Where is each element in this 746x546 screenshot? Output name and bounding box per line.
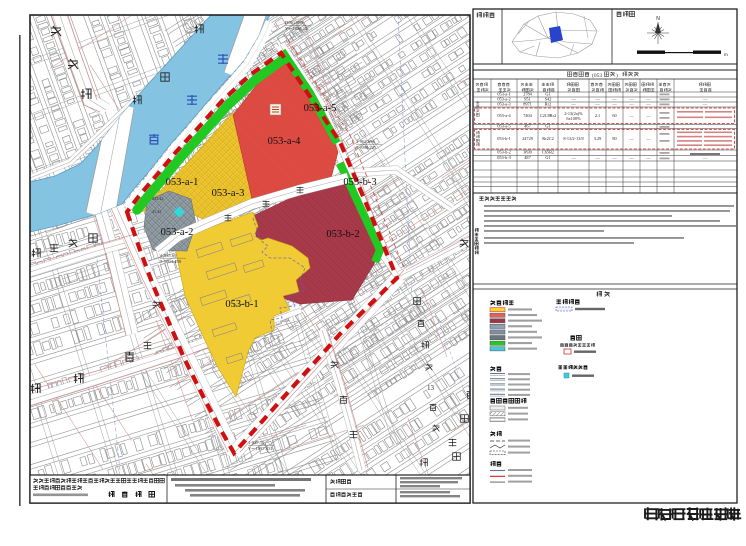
svg-text:3.29: 3.29	[594, 136, 602, 141]
svg-text:1-935.69: 1-935.69	[160, 253, 177, 258]
svg-text:G1: G1	[545, 155, 550, 160]
svg-text:053-a-3: 053-a-3	[212, 188, 245, 199]
svg-text:—: —	[594, 102, 600, 107]
svg-text:1-937.15: 1-937.15	[248, 440, 265, 445]
svg-text:8971: 8971	[523, 102, 532, 107]
svg-text:24729: 24729	[522, 136, 533, 141]
svg-text:487: 487	[524, 155, 531, 160]
svg-text:—: —	[594, 155, 600, 160]
svg-text:243.42: 243.42	[152, 196, 164, 201]
svg-text:—: —	[645, 102, 651, 107]
svg-text:—: —	[628, 102, 634, 107]
svg-text:—: —	[702, 156, 708, 161]
svg-text:8-13/2-13/8: 8-13/2-13/8	[563, 136, 583, 141]
svg-text:—: —	[645, 136, 651, 141]
svg-text:7404: 7404	[523, 113, 532, 118]
svg-text:—: —	[628, 136, 634, 141]
svg-text:053-a-4: 053-a-4	[497, 113, 511, 118]
svg-text:053-a-1: 053-a-1	[166, 177, 199, 188]
svg-text:1-962.696: 1-962.696	[356, 139, 375, 144]
svg-text:C2C8Rr2: C2C8Rr2	[540, 113, 556, 118]
svg-text:053-a-2: 053-a-2	[161, 227, 194, 238]
svg-text:053-b-2: 053-b-2	[497, 150, 511, 155]
svg-text:6x100%: 6x100%	[566, 116, 581, 121]
svg-text:—: —	[645, 113, 651, 118]
svg-text:053-b-1: 053-b-1	[225, 299, 258, 310]
svg-text:053-b-2: 053-b-2	[326, 229, 359, 240]
svg-text:053-b-3: 053-b-3	[343, 177, 376, 188]
svg-text:C65R2: C65R2	[542, 150, 554, 155]
svg-text:053-a-3: 053-a-3	[497, 102, 510, 107]
svg-text:053-a-4: 053-a-4	[268, 136, 301, 147]
svg-text:467: 467	[524, 124, 531, 129]
svg-text:—: —	[611, 102, 617, 107]
svg-text:5--998.225: 5--998.225	[356, 145, 377, 150]
svg-text:—: —	[645, 155, 651, 160]
svg-text:D561.890: D561.890	[285, 20, 304, 25]
svg-text:—: —	[570, 102, 576, 107]
svg-text:): )	[616, 72, 618, 79]
svg-text:053-b-3: 053-b-3	[497, 155, 511, 160]
svg-text:—: —	[570, 155, 576, 160]
svg-text:—: —	[702, 102, 708, 107]
svg-text:43.42: 43.42	[152, 209, 161, 214]
svg-text:—: —	[628, 155, 634, 160]
svg-text:053-a-5: 053-a-5	[304, 103, 337, 114]
svg-text:2.1: 2.1	[595, 113, 600, 118]
svg-text:053-b-1: 053-b-1	[497, 136, 511, 141]
svg-text:13: 13	[427, 384, 435, 392]
svg-text:60: 60	[612, 113, 616, 118]
svg-text:3830: 3830	[523, 150, 532, 155]
svg-text:Rr2C2: Rr2C2	[542, 136, 553, 141]
svg-text:5-1094.439: 5-1094.439	[160, 259, 182, 264]
svg-text:Rr2: Rr2	[545, 102, 551, 107]
svg-text:Y=-1026.13: Y=-1026.13	[285, 26, 308, 31]
svg-text:80: 80	[612, 136, 616, 141]
svg-text:m: m	[724, 52, 728, 57]
svg-text:N: N	[656, 16, 660, 22]
svg-text:G1: G1	[545, 124, 550, 129]
svg-text:053-a-5: 053-a-5	[497, 124, 510, 129]
svg-text:—: —	[611, 155, 617, 160]
svg-text:(053: (053	[592, 72, 602, 79]
svg-text:—: —	[628, 113, 634, 118]
svg-text:Y=-1097.431: Y=-1097.431	[248, 446, 273, 451]
